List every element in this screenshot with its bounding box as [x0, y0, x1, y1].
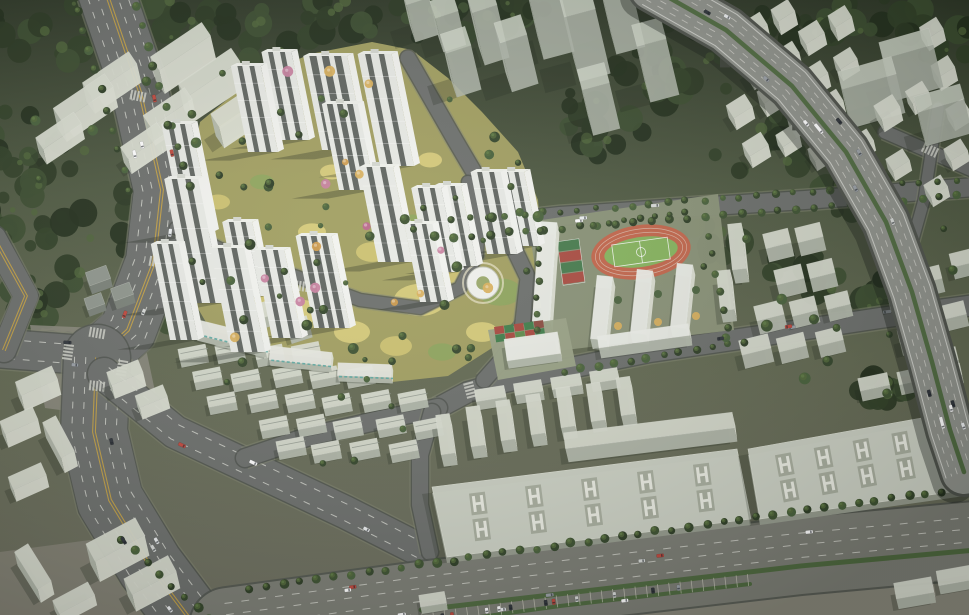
tree — [155, 82, 163, 90]
tree — [634, 531, 641, 538]
tree — [194, 603, 204, 613]
tree — [465, 354, 472, 361]
blossom-tree — [312, 242, 321, 251]
tree — [219, 70, 226, 77]
tree — [790, 189, 796, 195]
tree — [483, 550, 492, 559]
tree — [74, 7, 83, 16]
tree — [144, 42, 153, 51]
blossom-tree — [342, 159, 349, 166]
blossom-tree — [417, 290, 425, 298]
tree — [480, 238, 486, 244]
tree — [855, 499, 863, 507]
tree — [709, 250, 716, 257]
tree — [948, 265, 958, 275]
tree — [710, 344, 716, 350]
tree — [312, 575, 321, 584]
tree — [536, 277, 544, 285]
vehicle — [71, 363, 78, 367]
tree — [735, 195, 742, 202]
courtyard — [584, 503, 603, 527]
tree — [590, 222, 597, 229]
tree — [467, 214, 473, 220]
blossom-tree — [324, 66, 335, 77]
tree — [533, 546, 540, 553]
tree — [347, 571, 355, 579]
tree — [447, 216, 454, 223]
vehicle — [656, 553, 664, 557]
tree — [574, 208, 580, 214]
tree — [595, 362, 604, 371]
tree — [742, 235, 751, 244]
tree — [516, 546, 525, 555]
courtyard-tree — [692, 312, 700, 320]
tree — [516, 208, 524, 216]
tree — [561, 369, 568, 376]
tree — [468, 233, 475, 240]
tree — [641, 354, 650, 363]
tree — [803, 505, 811, 513]
tree — [701, 213, 709, 221]
tree — [720, 195, 726, 201]
garden-bed — [428, 343, 456, 360]
tree — [489, 132, 500, 143]
blossom-tree — [321, 179, 331, 189]
tree — [487, 212, 497, 222]
tree — [650, 526, 659, 535]
tree — [612, 220, 620, 228]
tree — [799, 373, 811, 385]
tree — [296, 578, 303, 585]
tree — [87, 125, 98, 136]
render-canvas — [0, 0, 969, 615]
tree — [681, 196, 688, 203]
tree — [398, 332, 406, 340]
tree — [280, 579, 290, 589]
tree — [339, 109, 348, 118]
tree — [486, 231, 495, 240]
tree — [720, 306, 728, 314]
tree — [652, 213, 658, 219]
vehicle — [485, 608, 489, 614]
tree — [535, 260, 541, 266]
tree — [661, 351, 668, 358]
tree — [447, 97, 453, 103]
tree — [277, 293, 282, 298]
tree — [320, 460, 327, 467]
tree — [109, 127, 116, 134]
garden-bed — [380, 336, 412, 356]
tree — [155, 570, 163, 578]
tree — [934, 178, 941, 185]
vehicle — [805, 530, 813, 534]
tree — [711, 271, 718, 278]
tree — [810, 204, 817, 211]
tree — [758, 209, 766, 217]
vehicle — [552, 599, 556, 605]
tree — [350, 457, 358, 465]
tree — [536, 246, 542, 252]
tree — [761, 320, 773, 332]
tree — [239, 315, 248, 324]
tree — [319, 305, 328, 314]
tree — [174, 143, 181, 150]
tree — [668, 527, 675, 534]
tree — [768, 510, 777, 519]
tree — [366, 568, 374, 576]
tree — [132, 2, 141, 11]
courtyard — [693, 463, 712, 487]
tree — [899, 180, 905, 186]
tree — [738, 209, 747, 218]
tree — [700, 263, 707, 270]
tree — [277, 108, 285, 116]
blossom-tree — [310, 283, 320, 293]
tree — [168, 583, 175, 590]
courtyard-tree — [614, 296, 622, 304]
tree — [131, 545, 140, 554]
tree — [735, 516, 743, 524]
tree — [565, 538, 575, 548]
tree — [432, 558, 442, 568]
tree — [265, 179, 274, 188]
tree — [114, 146, 121, 153]
tree — [919, 195, 927, 203]
tree — [585, 538, 593, 546]
tree — [740, 339, 748, 347]
tree — [828, 202, 835, 209]
tree — [450, 557, 459, 566]
tree — [833, 324, 841, 332]
vehicle — [621, 599, 628, 603]
tree — [245, 585, 253, 593]
blossom-tree — [282, 66, 293, 77]
tree — [888, 494, 896, 502]
tree — [507, 183, 514, 190]
tree — [79, 27, 86, 34]
tree — [809, 314, 819, 324]
tree — [693, 346, 701, 354]
tree — [240, 184, 247, 191]
tree — [103, 107, 110, 114]
tree — [724, 324, 732, 332]
tree — [721, 518, 728, 525]
tree — [199, 279, 205, 285]
tree — [239, 137, 246, 144]
vehicle — [544, 600, 548, 606]
tree — [593, 205, 599, 211]
tree — [188, 110, 197, 119]
tree — [683, 215, 691, 223]
tree — [139, 22, 146, 29]
tree — [318, 95, 325, 102]
tree — [820, 503, 829, 512]
tree — [681, 209, 688, 216]
tree — [621, 217, 627, 223]
tree — [307, 307, 314, 314]
blossom-tree — [437, 247, 444, 254]
tree — [430, 231, 440, 241]
blossom-tree — [261, 274, 269, 282]
tree — [318, 223, 323, 228]
tree — [684, 523, 693, 532]
blossom-tree — [363, 222, 371, 230]
tree — [186, 182, 195, 191]
tree — [667, 212, 673, 218]
tree — [664, 198, 672, 206]
tree — [537, 227, 545, 235]
courtyard-tree — [654, 290, 662, 298]
blossom-tree — [365, 79, 374, 88]
vehicle — [638, 559, 645, 563]
tree — [216, 171, 224, 179]
tree — [302, 320, 313, 331]
blossom-tree — [230, 332, 240, 342]
vehicle — [575, 596, 579, 602]
vehicle — [676, 585, 680, 591]
tree — [716, 288, 724, 296]
tree — [534, 327, 541, 334]
tree — [776, 294, 787, 305]
courtyard-tree — [692, 286, 700, 294]
tree — [414, 559, 423, 568]
tree — [921, 491, 929, 499]
tree — [163, 121, 172, 130]
courtyard — [640, 496, 659, 520]
tree — [752, 513, 760, 521]
courtyard-tree — [614, 322, 622, 330]
tree — [449, 233, 458, 242]
tree — [313, 259, 320, 266]
tree — [674, 348, 682, 356]
tree — [499, 548, 507, 556]
vehicle — [546, 593, 554, 597]
tree — [606, 220, 612, 226]
vehicle — [651, 204, 660, 208]
tree — [772, 190, 780, 198]
tree — [557, 210, 563, 216]
vehicle — [63, 340, 71, 344]
tree — [787, 507, 796, 516]
courtyard — [469, 492, 488, 516]
courtyard-tree — [654, 318, 662, 326]
tree — [329, 572, 337, 580]
tree — [550, 543, 559, 552]
tree — [882, 389, 891, 398]
tree — [179, 161, 188, 170]
blossom-tree — [391, 299, 398, 306]
vehicle — [509, 604, 513, 610]
tree — [265, 223, 272, 230]
tree — [121, 167, 128, 174]
vehicle — [168, 229, 172, 237]
vehicle — [717, 336, 724, 340]
courtyard — [472, 517, 491, 541]
tree — [774, 207, 781, 214]
tree — [719, 211, 727, 219]
tree — [400, 426, 407, 433]
tree — [822, 356, 833, 367]
courtyard — [637, 470, 656, 494]
tree — [627, 358, 635, 366]
tree — [245, 239, 256, 250]
tree — [226, 276, 235, 285]
courtyard — [525, 484, 544, 508]
tree — [381, 567, 389, 575]
tree — [30, 115, 40, 125]
tree — [810, 189, 817, 196]
tree — [295, 131, 302, 138]
tree — [388, 403, 394, 409]
tree — [704, 520, 713, 529]
tree — [484, 150, 494, 160]
tree — [515, 160, 521, 166]
courtyard — [696, 489, 715, 513]
tree — [838, 502, 846, 510]
tree — [702, 198, 709, 205]
tree — [348, 343, 359, 354]
tree — [90, 65, 99, 74]
tree — [916, 180, 923, 187]
tree — [420, 205, 426, 211]
tree — [338, 393, 346, 401]
vehicle — [497, 606, 501, 612]
tree — [322, 203, 329, 210]
tree — [452, 261, 463, 272]
tree — [467, 344, 475, 352]
tree — [533, 211, 544, 222]
tree — [263, 583, 271, 591]
tree — [343, 280, 348, 285]
tree — [191, 137, 202, 148]
tree — [870, 497, 879, 506]
tree — [125, 187, 133, 195]
tree — [362, 357, 367, 362]
tree — [940, 225, 947, 232]
tree — [612, 205, 619, 212]
vehicle — [651, 588, 655, 594]
blossom-tree — [483, 283, 493, 293]
tree — [533, 295, 539, 301]
vehicle — [612, 592, 616, 598]
tree — [523, 268, 530, 275]
tree — [224, 379, 230, 385]
circular-pavilion — [463, 263, 503, 303]
tree — [148, 62, 157, 71]
vehicle — [579, 216, 587, 220]
vehicle — [344, 588, 351, 592]
garden-bed — [418, 153, 442, 168]
tree — [181, 594, 188, 601]
tree — [935, 193, 942, 200]
tree — [465, 553, 472, 560]
tree — [753, 192, 760, 199]
tree — [163, 103, 171, 111]
tree — [188, 258, 195, 265]
tree — [410, 226, 417, 233]
courtyard — [528, 510, 547, 534]
courtyard — [581, 477, 600, 501]
tree — [559, 226, 566, 233]
blossom-tree — [295, 297, 305, 307]
tree — [792, 205, 801, 214]
tree — [576, 364, 585, 373]
tree — [629, 218, 637, 226]
tree — [453, 195, 459, 201]
tree — [705, 233, 712, 240]
tree — [400, 214, 410, 224]
blossom-tree — [355, 170, 364, 179]
tree — [364, 376, 370, 382]
tree — [398, 565, 405, 572]
tree — [144, 559, 152, 567]
tree — [501, 213, 508, 220]
tree — [952, 191, 961, 200]
tree — [35, 175, 43, 183]
tree — [84, 46, 93, 55]
tree — [238, 357, 248, 367]
tree — [954, 178, 960, 184]
tree — [905, 491, 914, 500]
tree — [534, 311, 541, 318]
tree — [637, 215, 644, 222]
tree — [142, 77, 151, 86]
tree — [600, 534, 609, 543]
tree — [365, 231, 375, 241]
tree — [505, 227, 514, 236]
aerial-masterplan-render — [0, 0, 969, 615]
tree — [98, 85, 106, 93]
tree — [618, 531, 627, 540]
tree — [439, 300, 449, 310]
tree — [522, 228, 529, 235]
tree — [629, 203, 636, 210]
tree — [388, 357, 396, 365]
tree — [452, 344, 461, 353]
tree — [281, 268, 288, 275]
tree — [610, 359, 619, 368]
